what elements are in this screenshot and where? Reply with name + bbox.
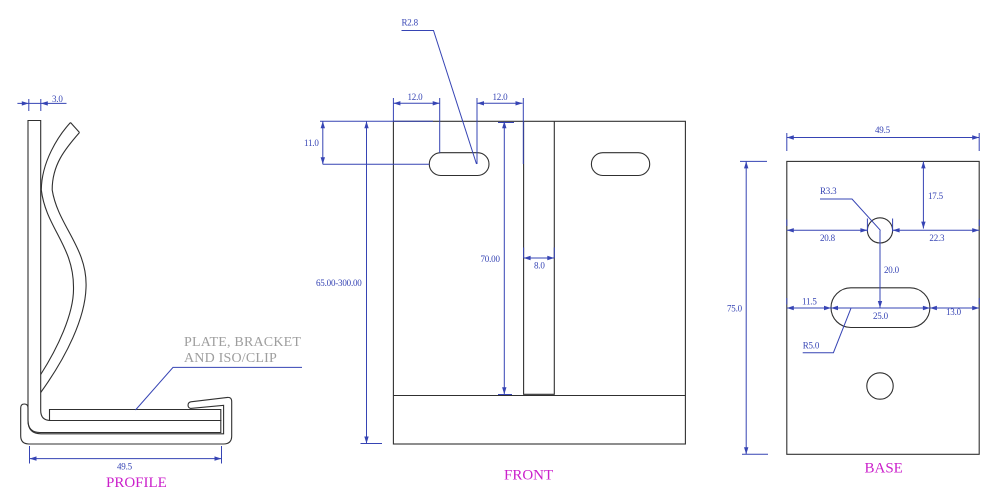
svg-text:FRONT: FRONT: [504, 468, 553, 484]
svg-text:20.8: 20.8: [820, 233, 836, 243]
svg-text:3.0: 3.0: [52, 94, 63, 104]
svg-text:22.3: 22.3: [929, 233, 945, 243]
svg-text:65.00-300.00: 65.00-300.00: [316, 278, 362, 288]
svg-text:75.0: 75.0: [727, 304, 743, 314]
svg-text:49.5: 49.5: [117, 462, 133, 472]
svg-text:12.0: 12.0: [408, 92, 424, 102]
svg-text:R5.0: R5.0: [803, 341, 820, 351]
svg-text:BASE: BASE: [865, 461, 903, 477]
svg-text:R2.8: R2.8: [402, 18, 419, 28]
svg-text:12.0: 12.0: [493, 92, 509, 102]
svg-text:R3.3: R3.3: [820, 186, 837, 196]
svg-text:70.00: 70.00: [481, 254, 501, 264]
svg-text:AND ISO/CLIP: AND ISO/CLIP: [184, 351, 277, 366]
svg-text:PROFILE: PROFILE: [106, 475, 167, 491]
svg-text:8.0: 8.0: [534, 261, 545, 271]
svg-text:25.0: 25.0: [873, 311, 889, 321]
svg-text:11.5: 11.5: [802, 297, 817, 307]
svg-text:PLATE, BRACKET: PLATE, BRACKET: [184, 335, 301, 350]
svg-text:20.0: 20.0: [884, 265, 900, 275]
svg-text:11.0: 11.0: [304, 138, 319, 148]
svg-text:49.5: 49.5: [875, 125, 891, 135]
svg-text:13.0: 13.0: [946, 307, 962, 317]
svg-text:17.5: 17.5: [928, 191, 944, 201]
